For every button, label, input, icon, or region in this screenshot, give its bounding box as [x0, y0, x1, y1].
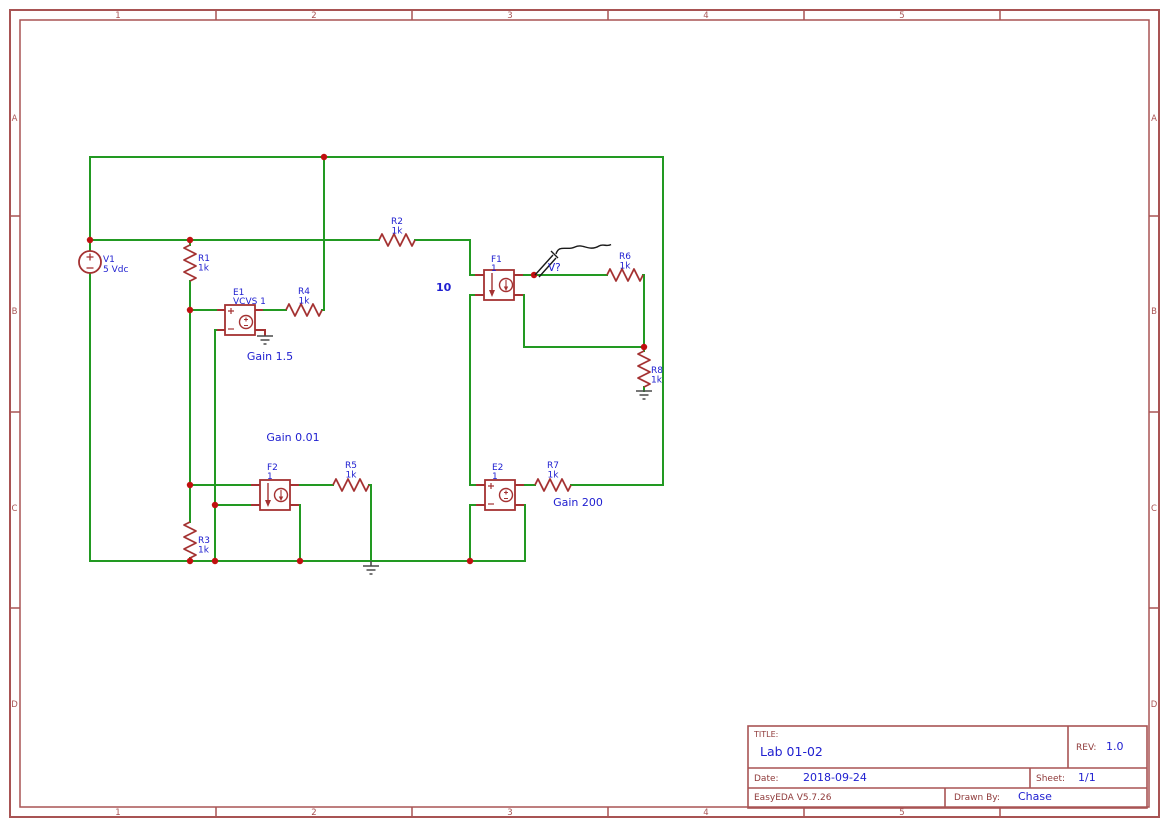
frame-row-label: C [12, 504, 18, 514]
v1-value-label[interactable]: 5 Vdc [103, 265, 128, 275]
frame-col-label: 3 [507, 808, 512, 818]
r3-value-label[interactable]: 1k [198, 546, 210, 556]
date-value[interactable]: 2018-09-24 [803, 771, 867, 784]
f2-gain-label[interactable]: Gain 0.01 [266, 431, 319, 444]
date-label: Date: [754, 774, 779, 784]
r4-value-label[interactable]: 1k [299, 297, 311, 307]
r8-value-label[interactable]: 1k [651, 376, 663, 386]
junction-dot [321, 154, 327, 160]
frame-col-label: 1 [115, 808, 120, 818]
r5-value-label[interactable]: 1k [346, 471, 358, 481]
junction-dot [187, 307, 193, 313]
software-version: EasyEDA V5.7.26 [754, 793, 832, 803]
voltage-source-V1[interactable] [79, 251, 101, 273]
frame-col-label: 5 [899, 11, 904, 21]
junction-dot [187, 482, 193, 488]
frame-col-label: 2 [311, 808, 316, 818]
frame-col-label: 4 [703, 11, 708, 21]
f1-value-label[interactable]: 1 [491, 264, 497, 274]
junction-dot [87, 237, 93, 243]
sheet-value[interactable]: 1/1 [1078, 771, 1096, 784]
probe-label[interactable]: V? [548, 262, 561, 274]
junction-dot [187, 237, 193, 243]
junction-dot [297, 558, 303, 564]
e1-gain-label[interactable]: Gain 1.5 [247, 350, 293, 363]
junction-dot [212, 558, 218, 564]
title-label: TITLE: [753, 730, 778, 739]
schematic-canvas[interactable]: 1 2 3 4 5 1 2 3 4 5 A B C D A B C D [0, 0, 1169, 827]
frame-row-label: B [12, 307, 18, 317]
sheet-background [0, 0, 1169, 827]
r5-ref-label[interactable]: R5 [345, 461, 357, 471]
frame-col-label: 3 [507, 11, 512, 21]
e2-value-label[interactable]: 1 [492, 472, 498, 482]
v1-ref-label[interactable]: V1 [103, 255, 115, 265]
rev-label: REV: [1076, 743, 1096, 753]
frame-row-label: A [1151, 114, 1157, 124]
r6-value-label[interactable]: 1k [620, 262, 632, 272]
frame-col-label: 4 [703, 808, 708, 818]
r1-ref-label[interactable]: R1 [198, 254, 210, 264]
f2-value-label[interactable]: 1 [267, 472, 273, 482]
frame-row-label: D [11, 700, 18, 710]
frame-row-label: A [12, 114, 18, 124]
r7-ref-label[interactable]: R7 [547, 461, 559, 471]
frame-row-label: B [1151, 307, 1157, 317]
r6-ref-label[interactable]: R6 [619, 252, 631, 262]
junction-dot [187, 558, 193, 564]
sheet-title[interactable]: Lab 01-02 [760, 744, 823, 759]
drawn-by-label: Drawn By: [954, 793, 1000, 803]
r3-ref-label[interactable]: R3 [198, 536, 210, 546]
r8-ref-label[interactable]: R8 [651, 366, 663, 376]
frame-col-label: 2 [311, 11, 316, 21]
r1-value-label[interactable]: 1k [198, 264, 210, 274]
junction-dot [641, 344, 647, 350]
frame-row-label: D [1151, 700, 1158, 710]
r2-value-label[interactable]: 1k [392, 227, 404, 237]
f1-gain-label[interactable]: 10 [436, 281, 452, 294]
e2-gain-label[interactable]: Gain 200 [553, 496, 603, 509]
rev-value[interactable]: 1.0 [1106, 740, 1124, 753]
r2-ref-label[interactable]: R2 [391, 217, 403, 227]
e1-value-label[interactable]: VCVS 1 [233, 297, 266, 307]
r4-ref-label[interactable]: R4 [298, 287, 310, 297]
frame-row-label: C [1151, 504, 1157, 514]
frame-col-label: 1 [115, 11, 120, 21]
junction-dot [212, 502, 218, 508]
sheet-label: Sheet: [1036, 774, 1065, 784]
junction-dot [467, 558, 473, 564]
r7-value-label[interactable]: 1k [548, 471, 560, 481]
drawn-by-value[interactable]: Chase [1018, 790, 1052, 803]
frame-col-label: 5 [899, 808, 904, 818]
